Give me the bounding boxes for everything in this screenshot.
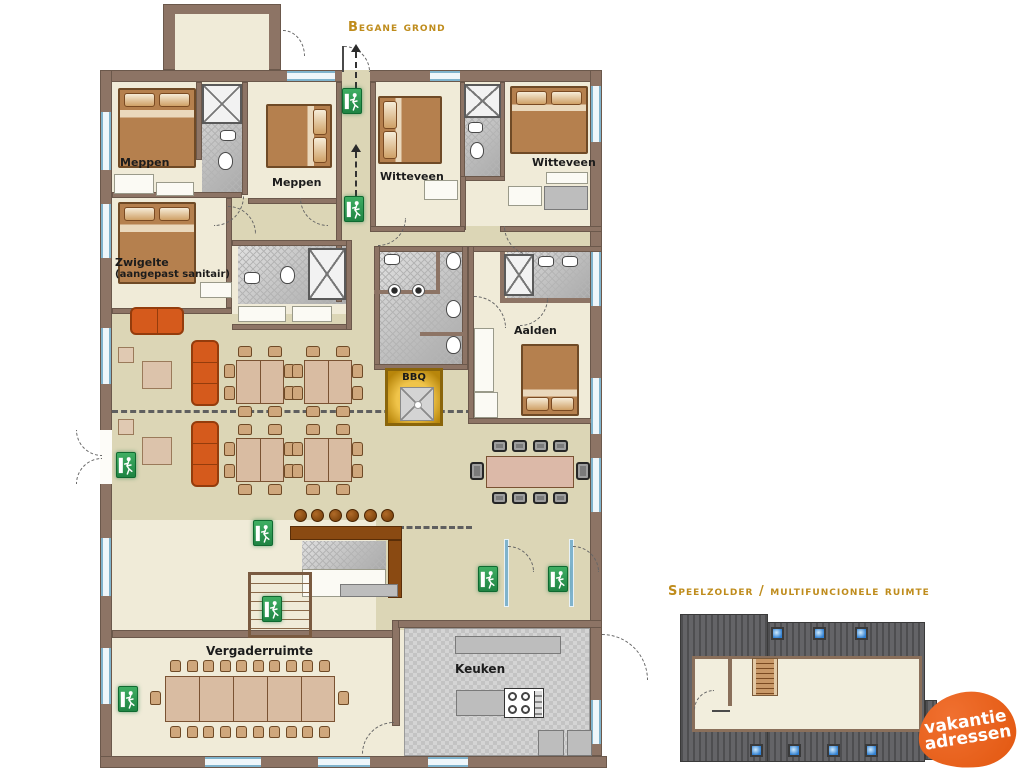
double-bed [521,344,579,416]
bar-shelf [340,584,398,597]
sink-icon [562,256,578,267]
chair [336,346,350,357]
sofa [130,307,184,335]
window-marker [101,328,111,384]
dining-table [304,438,352,482]
escape-arrow-head [351,144,361,152]
chair [238,424,252,435]
chair [238,484,252,495]
chair [236,726,247,738]
skylight-icon [813,627,826,640]
basin-icon [388,284,401,297]
room-label-meppen: Meppen [272,176,321,189]
wall-int [346,240,352,330]
skylight-icon [750,744,763,757]
chair [286,726,297,738]
bar-stool [311,509,324,522]
wall-wc-div [374,290,438,294]
window-marker [101,538,111,596]
bar-stool [329,509,342,522]
burner [508,705,517,714]
chair [533,492,548,504]
window-marker [287,71,335,81]
chair [512,440,527,452]
chair [292,464,303,478]
room-label-zwigelte-sub: (aangepast sanitair) [115,269,230,280]
chair [352,442,363,456]
double-bed [266,104,332,168]
bar-stool [364,509,377,522]
logo-text: vakantie adressen [921,707,1012,753]
side-table [118,419,134,435]
chair [336,424,350,435]
wall-int [232,240,352,246]
emergency-exit-icon [548,566,568,592]
escape-route-arrow [355,52,357,88]
wall-int [232,324,352,330]
kitchen-appliance [538,730,564,756]
attic-room [692,656,922,732]
chair [203,726,214,738]
wall-aalden [468,246,602,252]
double-bed [378,96,442,164]
door-swing-arc [602,634,648,680]
door-leaf [712,710,730,712]
chair [224,464,235,478]
chair [492,492,507,504]
kitchen-counter [455,636,561,654]
room-label-zwigelte: Zwigelte [115,256,169,269]
room-label-witteveen: Witteveen [532,156,596,169]
chair [236,660,247,672]
sofa [191,340,219,406]
window-marker [318,757,370,767]
emergency-exit-icon [262,596,282,622]
cabinet [474,392,498,418]
chair [170,660,181,672]
sink-icon [244,272,260,284]
attic-staircase [752,658,778,696]
burner [508,692,517,701]
vanity [292,306,332,322]
dresser [424,180,458,200]
burner [521,692,530,701]
skylight-icon [865,744,878,757]
wall-keuken [398,620,602,628]
chair [470,462,484,480]
chair [238,406,252,417]
wall-int [460,176,466,230]
chair [253,660,264,672]
chair [268,484,282,495]
toilet-icon [446,336,461,354]
chair [187,660,198,672]
bar-floor [302,541,386,569]
bar-stool [294,509,307,522]
chair [268,346,282,357]
four-burner-stove [504,688,544,718]
chair [336,406,350,417]
cabinet [544,186,588,210]
attic-wall [728,658,732,706]
floorplan-canvas: Begane grond Speelzolder / multifuncione… [0,0,1024,768]
door-swing-arc [283,30,305,56]
chair [238,346,252,357]
window-marker [591,252,601,306]
door-swing-arc [76,430,102,456]
bbq-grill-icon [400,387,434,421]
sink-icon [468,122,483,133]
bbq-label: BBQ [388,371,440,385]
shower-icon [308,248,346,300]
window-marker [591,86,601,142]
door-swing-arc [76,458,102,484]
wardrobe [474,328,494,392]
chair [269,726,280,738]
wall-int [460,176,505,181]
sink-icon [538,256,554,267]
emergency-exit-icon [478,566,498,592]
dresser [546,172,588,184]
emergency-exit-icon [253,520,273,546]
kitchen-appliance [567,730,592,756]
toilet-icon [218,152,233,170]
shower-icon [202,84,242,124]
chair [292,364,303,378]
escape-route-arrow [355,152,357,196]
chair [319,726,330,738]
bar-counter [290,526,402,540]
chair [336,484,350,495]
chair [224,442,235,456]
wall-wc [374,246,380,370]
chair [352,386,363,400]
coffee-table [142,437,172,465]
chair [286,660,297,672]
side-table [118,347,134,363]
bbq-area: BBQ [385,368,443,426]
chair [224,386,235,400]
sink-icon [220,130,236,141]
chair [150,691,161,705]
bar-stool [381,509,394,522]
wall-int [242,82,248,195]
toilet-icon [280,266,295,284]
divider-dashed [398,526,472,529]
dining-table [236,438,284,482]
room-label-vergaderruimte: Vergaderruimte [206,644,313,658]
skylight-icon [827,744,840,757]
chair [338,691,349,705]
coffee-table [142,361,172,389]
hall-floor [352,246,374,314]
chair [512,492,527,504]
chair [576,462,590,480]
chair [306,484,320,495]
room-label-witteveen: Witteveen [380,170,444,183]
chair [203,660,214,672]
chair [268,424,282,435]
room-label-keuken: Keuken [455,662,505,676]
chair [533,440,548,452]
dining-table [304,360,352,404]
window-marker [591,458,601,512]
wall-aalden [468,418,602,424]
window-marker [101,204,111,258]
double-bed [510,86,588,154]
window-marker [591,700,601,744]
wall-wc-div [420,332,466,336]
room-label-meppen: Meppen [120,156,169,169]
emergency-exit-icon [344,196,364,222]
chair [292,386,303,400]
skylight-icon [771,627,784,640]
escape-arrow-head [351,44,361,52]
chair [553,440,568,452]
porch-floor [175,14,269,70]
emergency-exit-icon [118,686,138,712]
basin-icon [412,284,425,297]
chair [269,660,280,672]
wall-wc-div [436,252,440,294]
chair [319,660,330,672]
chair [253,726,264,738]
chair [492,440,507,452]
chair [302,726,313,738]
dresser [508,186,542,206]
sink-icon [384,254,400,265]
stove-controls [534,691,542,717]
dining-table [236,360,284,404]
sofa [191,421,219,487]
chair [224,364,235,378]
window-marker [101,112,111,170]
chair [170,726,181,738]
window-marker [591,378,601,434]
chair [268,406,282,417]
wall-keuken [392,620,400,726]
wall-corridor [370,82,376,230]
chair [302,660,313,672]
chair [306,406,320,417]
skylight-icon [788,744,801,757]
conference-table [165,676,335,722]
shower-icon [504,254,534,296]
vanity [238,306,286,322]
window-marker [101,648,111,704]
chair [553,492,568,504]
window-marker [428,757,468,767]
window-marker [430,71,460,81]
skylight-icon [855,627,868,640]
chair [187,726,198,738]
emergency-exit-icon [116,452,136,478]
page-title: Begane grond [348,20,446,35]
shower-icon [464,84,501,118]
toilet-icon [470,142,484,159]
secondary-title: Speelzolder / multifuncionele ruimte [668,584,930,599]
dresser [156,182,194,196]
chair [220,726,231,738]
burner [521,705,530,714]
chair [352,464,363,478]
chair [306,424,320,435]
chair [352,364,363,378]
toilet-icon [446,300,461,318]
dresser [114,174,154,194]
chair [306,346,320,357]
window-marker [205,757,261,767]
toilet-icon [446,252,461,270]
room-label-aalden: Aalden [514,324,557,337]
dresser [200,282,232,298]
bar-stool [346,509,359,522]
emergency-exit-icon [342,88,362,114]
chair [220,660,231,672]
conference-set [148,660,352,740]
chair [292,442,303,456]
long-dining-table [486,456,574,488]
